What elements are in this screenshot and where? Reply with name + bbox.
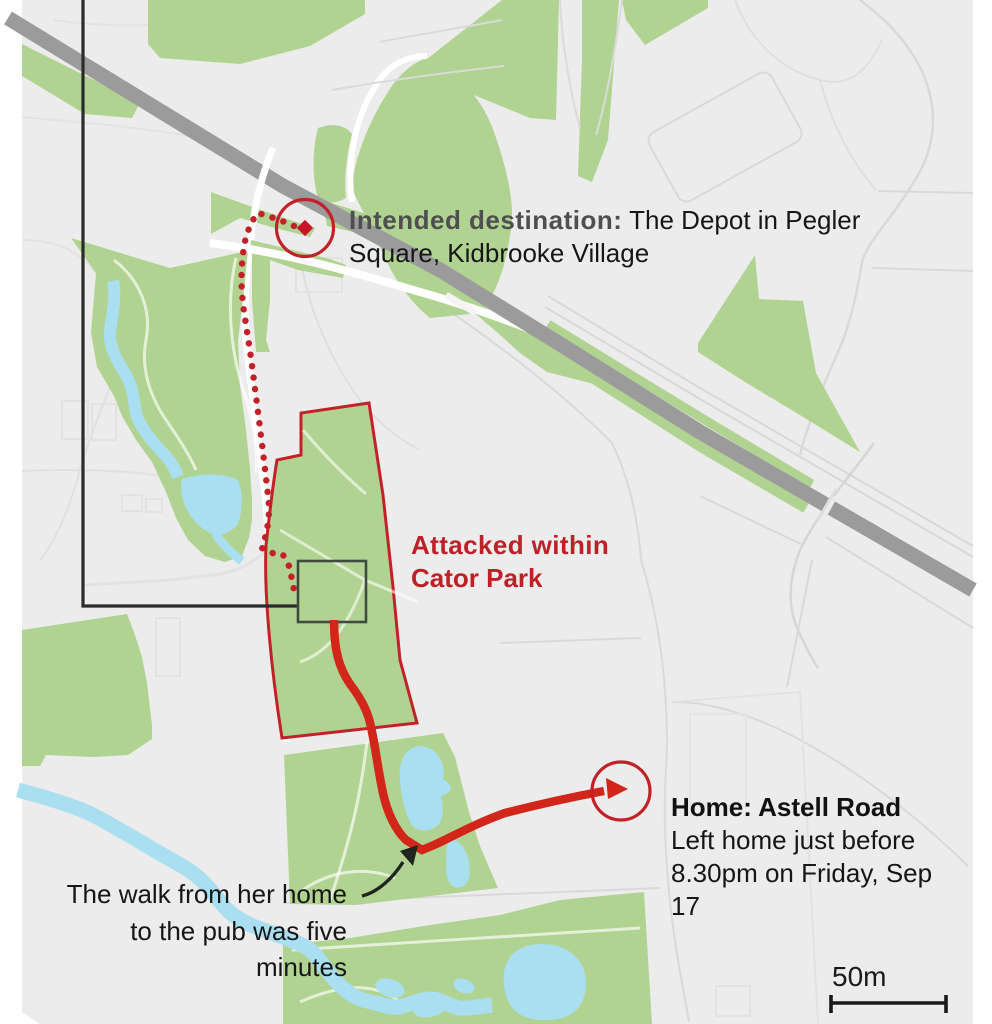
svg-text:Cator Park: Cator Park [411, 563, 543, 593]
svg-text:8.30pm on Friday, Sep: 8.30pm on Friday, Sep [671, 858, 932, 888]
svg-text:50m: 50m [832, 961, 886, 992]
svg-text:minutes: minutes [256, 952, 347, 982]
svg-text:The walk from her home: The walk from her home [67, 879, 347, 909]
svg-text:Intended destination: The Depo: Intended destination: The Depot in Pegle… [349, 205, 861, 235]
svg-text:to the pub was five: to the pub was five [130, 916, 347, 946]
svg-text:Attacked within: Attacked within [411, 530, 609, 560]
svg-text:Left home just before: Left home just before [671, 825, 915, 855]
svg-text:Home: Astell Road: Home: Astell Road [671, 792, 901, 822]
svg-text:Square, Kidbrooke Village: Square, Kidbrooke Village [349, 238, 649, 268]
svg-text:17: 17 [671, 891, 700, 921]
